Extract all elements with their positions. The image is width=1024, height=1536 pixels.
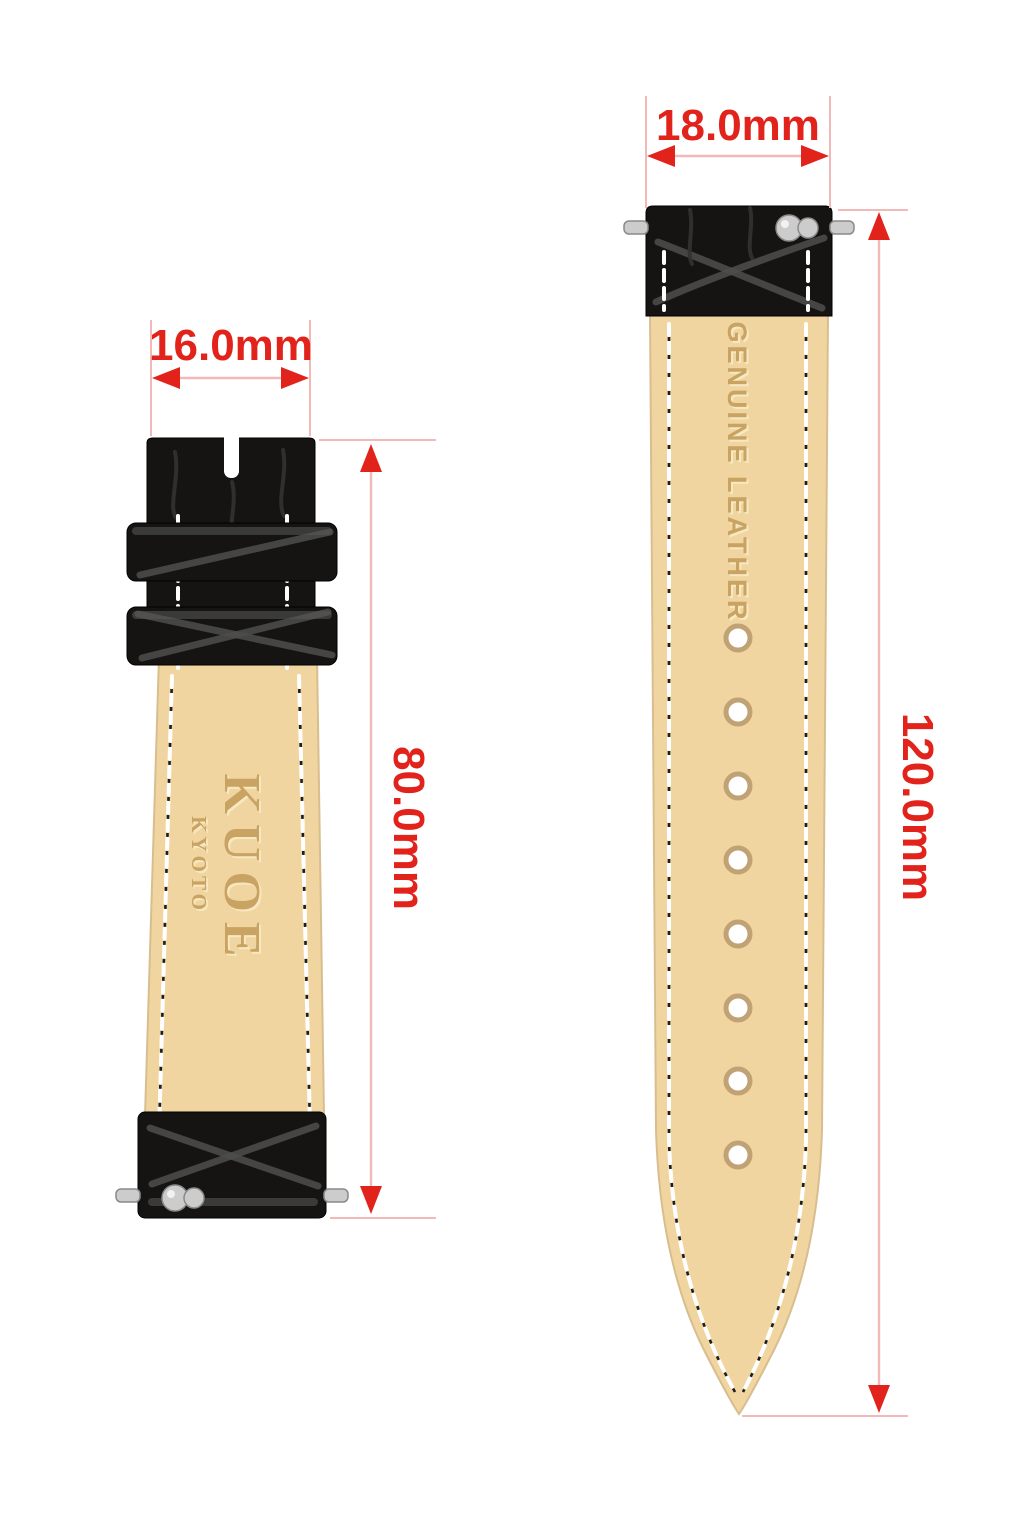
brand-text: KUOE [213, 773, 270, 966]
springbar-pin-left [116, 1189, 140, 1202]
arrowhead-down [868, 1385, 890, 1413]
dimension-label-80mm: 80.0mm [384, 746, 433, 910]
strap-hole-2 [726, 700, 750, 724]
strap-dimension-diagram: KUOE KUOE KYOTO KYOTO [0, 0, 1024, 1536]
material-text: GENUINE LEATHER [722, 321, 752, 622]
material-embossing: GENUINE LEATHER GENUINE LEATHER [722, 321, 754, 624]
springbar-pin-right [324, 1189, 348, 1202]
arrowhead-down [360, 1186, 382, 1214]
arrowhead-up [868, 212, 890, 240]
right-strap: GENUINE LEATHER GENUINE LEATHER [624, 206, 854, 1414]
quick-release-knob [184, 1188, 204, 1208]
arrowhead-right [281, 367, 309, 389]
strap-hole-5 [726, 922, 750, 946]
strap-notch-slot [224, 430, 239, 478]
strap-keeper-2 [127, 607, 337, 665]
strap-hole-8 [726, 1143, 750, 1167]
strap-hole-4 [726, 848, 750, 872]
springbar-pin-left [624, 221, 648, 234]
brand-sub-text: KYOTO [187, 816, 211, 914]
dimension-right-width: 18.0mm [646, 96, 830, 208]
strap-hole-6 [726, 996, 750, 1020]
arrowhead-left [152, 367, 180, 389]
strap-hole-1 [726, 626, 750, 650]
dimension-label-18mm: 18.0mm [656, 101, 820, 150]
dimension-left-width: 16.0mm [149, 320, 313, 436]
left-strap-springbar-end [116, 1112, 348, 1218]
strap-keeper-1 [127, 523, 337, 581]
knob-highlight [167, 1190, 175, 1198]
right-strap-lug-end [624, 206, 854, 316]
dimension-label-16mm: 16.0mm [149, 321, 313, 370]
dimension-label-120mm: 120.0mm [893, 713, 942, 901]
diagram-canvas: KUOE KUOE KYOTO KYOTO [0, 0, 1024, 1536]
arrowhead-up [360, 444, 382, 472]
quick-release-knob [798, 218, 818, 238]
left-strap: KUOE KUOE KYOTO KYOTO [116, 430, 348, 1218]
strap-hole-7 [726, 1069, 750, 1093]
springbar-pin-right [830, 221, 854, 234]
strap-hole-3 [726, 774, 750, 798]
knob-highlight [781, 220, 789, 228]
